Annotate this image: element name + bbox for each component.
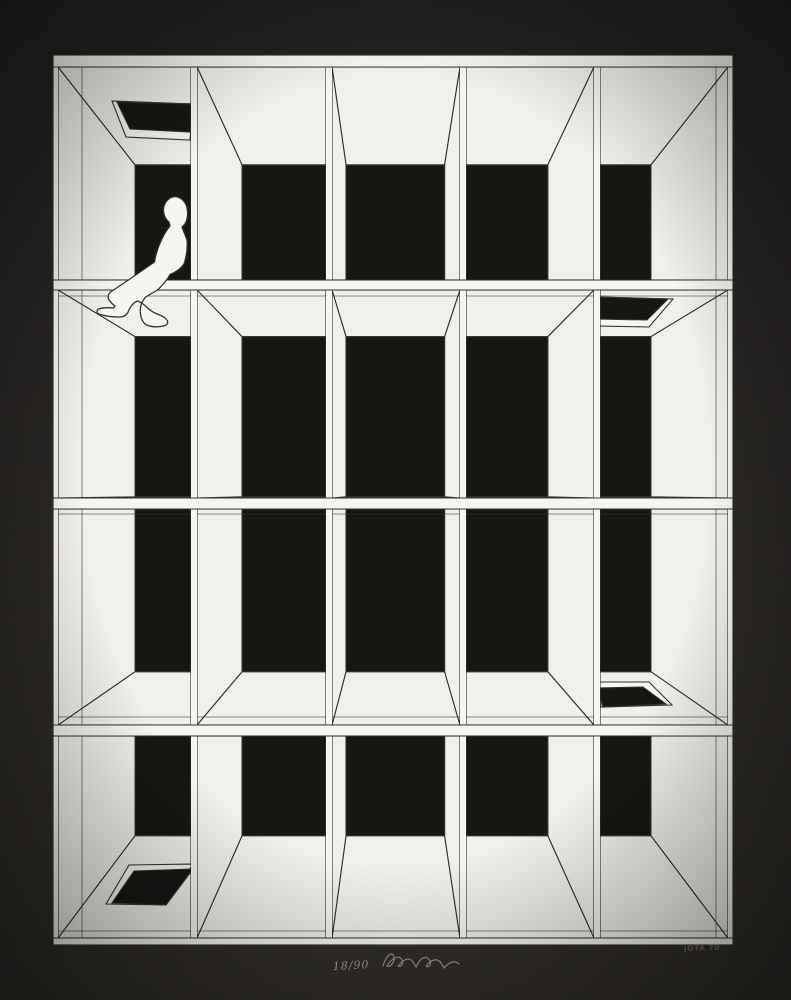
grid-structure bbox=[53, 55, 733, 945]
cell-r2c4 bbox=[449, 290, 594, 498]
cell-ceiling bbox=[332, 67, 460, 165]
artwork-canvas: JOTA 70 18/90 bbox=[0, 0, 791, 1000]
cell-r2c3 bbox=[332, 290, 460, 498]
edition-number: 18/90 bbox=[332, 958, 369, 973]
cell-ceiling bbox=[332, 290, 460, 337]
cell-floor bbox=[332, 836, 460, 938]
cell-r3c4 bbox=[449, 505, 594, 725]
artwork-photo: JOTA 70 18/90 bbox=[0, 0, 791, 1000]
cell-r2c2 bbox=[197, 290, 341, 498]
cell-back-opening bbox=[346, 337, 445, 497]
cell-r3c3 bbox=[332, 505, 460, 725]
plate-inscription: JOTA 70 bbox=[683, 943, 720, 953]
cell-r3c2 bbox=[197, 505, 341, 725]
cell-back-opening bbox=[346, 505, 445, 671]
